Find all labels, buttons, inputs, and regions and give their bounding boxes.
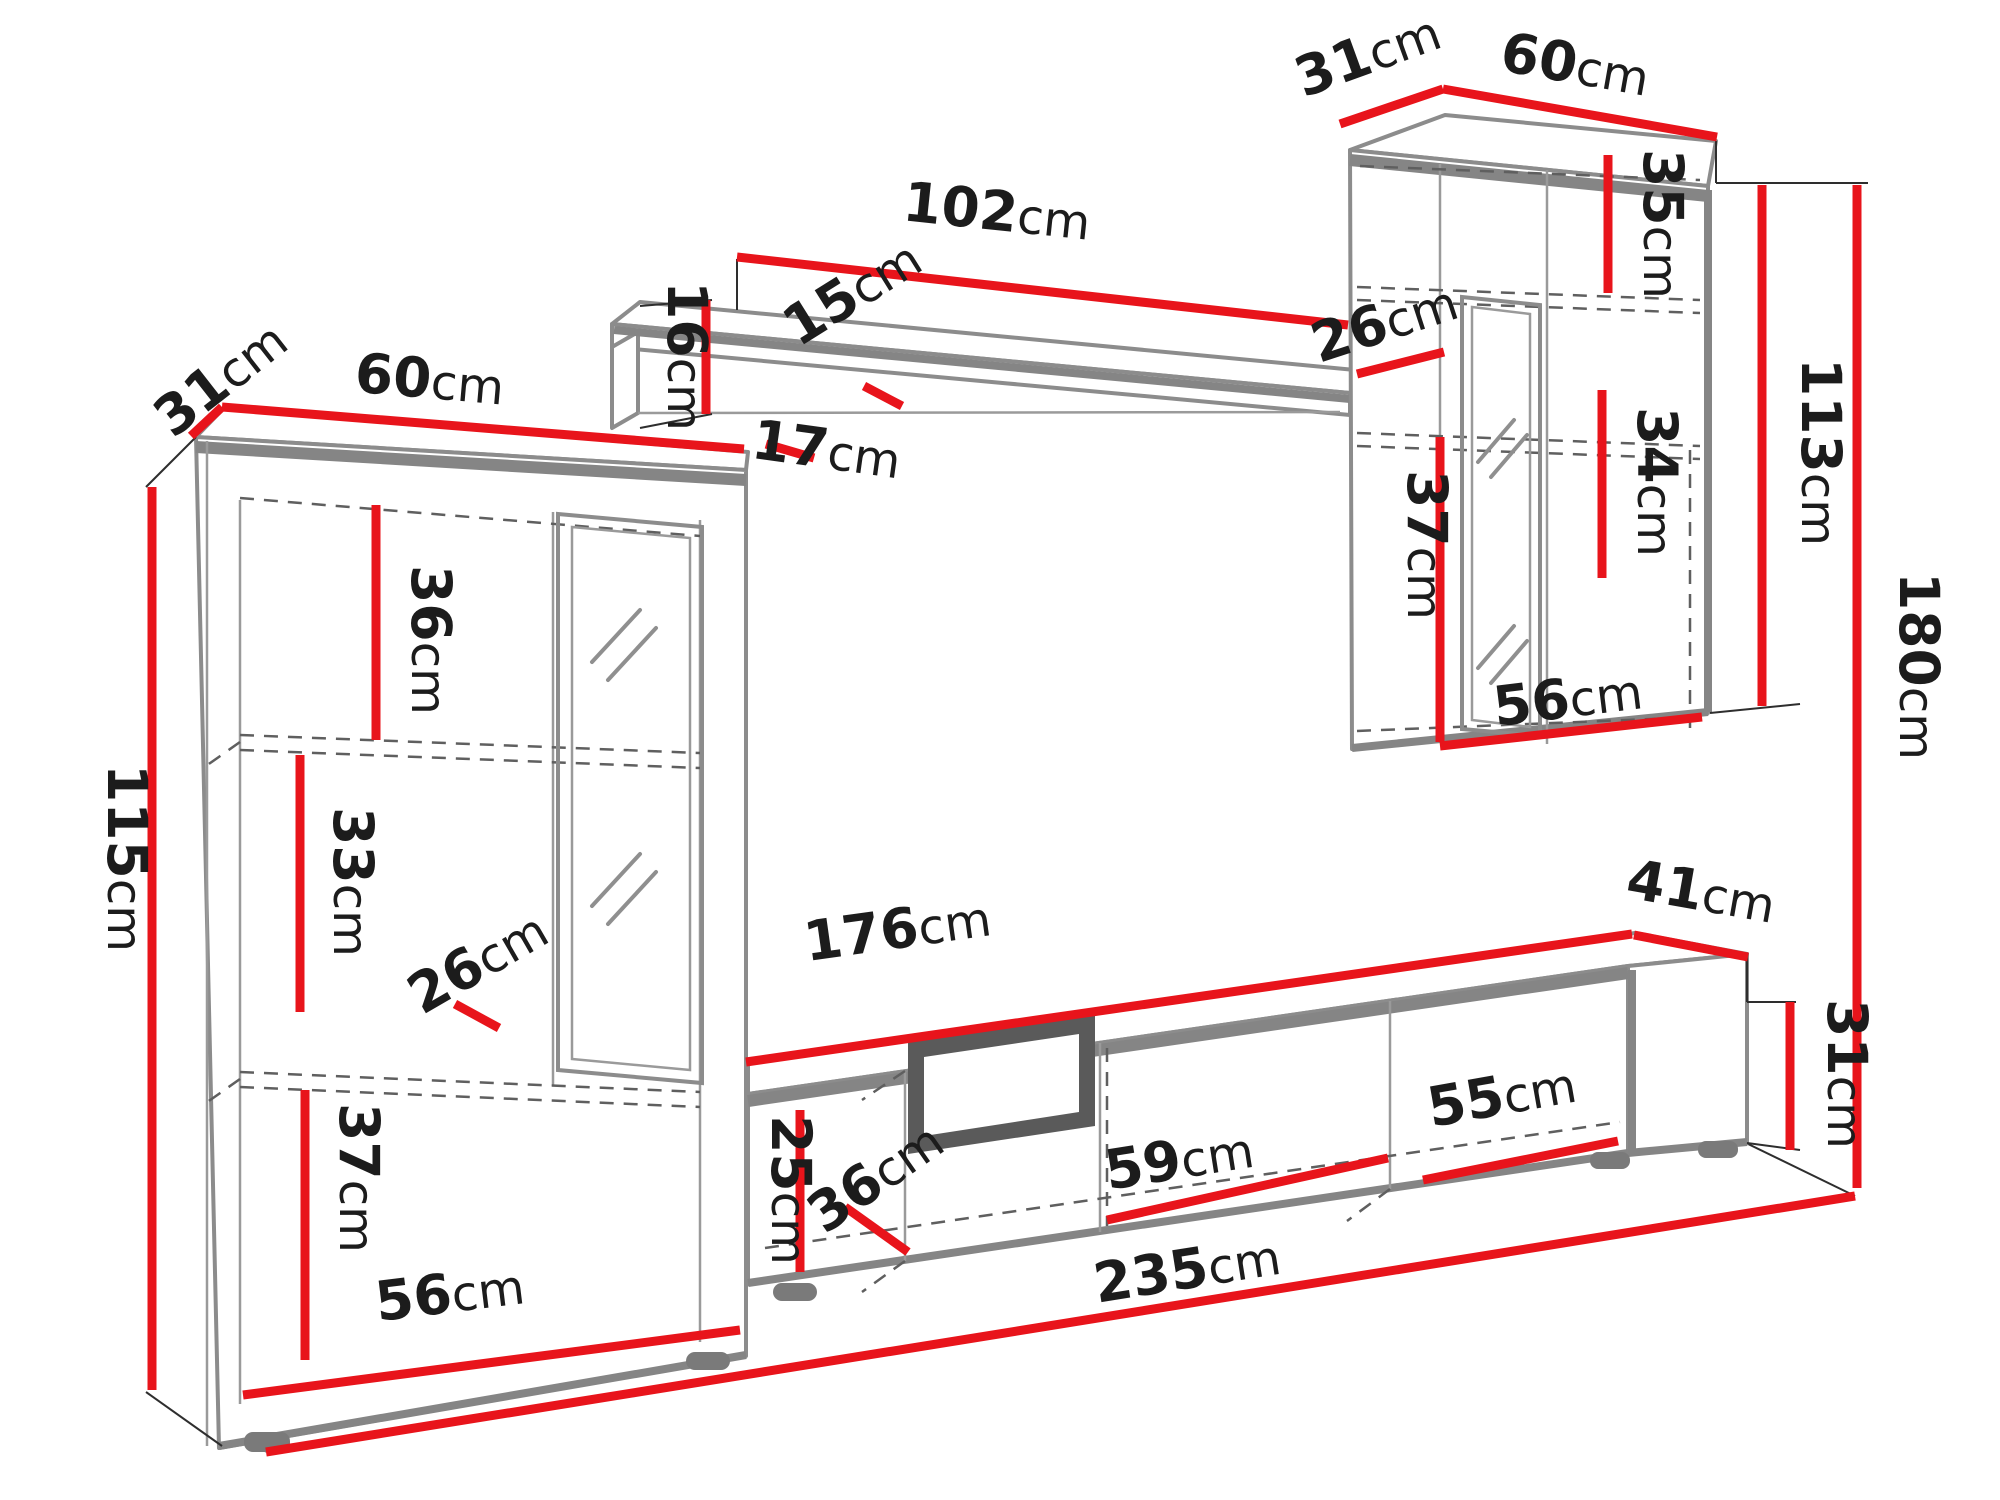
ext-115-top [146, 437, 196, 487]
tv-stand-right-face [1628, 954, 1747, 1154]
label-tv-stand-depth: 41cm [1622, 847, 1781, 936]
wall-shelf-left-bracket [612, 332, 638, 428]
furniture-dimension-diagram: 31cm 60cm 115cm 36cm 33cm 26cm 37cm 56cm… [0, 0, 2000, 1500]
tv-stand-front-right-foot [1590, 1152, 1630, 1169]
ext-113-bottom [1710, 704, 1800, 713]
label-right-cabinet-bottom-section: 37cm [1395, 470, 1459, 620]
label-right-cabinet-height: 113cm [1789, 358, 1853, 546]
tv-stand-back-right-foot [1698, 1141, 1738, 1158]
label-right-cabinet-middle-section: 34cm [1625, 407, 1689, 557]
label-overall-height: 180cm [1887, 572, 1951, 760]
diagram-canvas: 31cm 60cm 115cm 36cm 33cm 26cm 37cm 56cm… [0, 0, 2000, 1500]
tv-stand-left-foot [773, 1283, 817, 1301]
label-left-cabinet-middle-section: 33cm [321, 807, 385, 957]
label-tv-stand-length: 176cm [800, 884, 995, 974]
label-tv-stand-height: 31cm [1815, 999, 1879, 1149]
label-left-cabinet-top-section: 36cm [399, 565, 463, 715]
left-cabinet-right-foot [686, 1352, 730, 1370]
label-right-cabinet-top-section: 35cm [1631, 149, 1695, 299]
wall-shelf [612, 302, 1376, 428]
label-left-cabinet-height: 115cm [95, 764, 159, 952]
label-left-cabinet-bottom-section: 37cm [327, 1103, 391, 1253]
dim-line-right-cabinet-depth [1340, 89, 1443, 124]
dim-line-shelf-depth [864, 386, 902, 406]
label-right-cabinet-width: 60cm [1496, 20, 1655, 109]
label-shelf-length: 102cm [900, 169, 1094, 252]
ext-115-bottom [146, 1392, 222, 1446]
label-shelf-height: 16cm [655, 281, 719, 431]
label-shelf-gap: 17cm [748, 407, 905, 491]
wall-shelf-under-edge [638, 412, 1340, 413]
label-left-cabinet-width: 60cm [352, 341, 507, 418]
